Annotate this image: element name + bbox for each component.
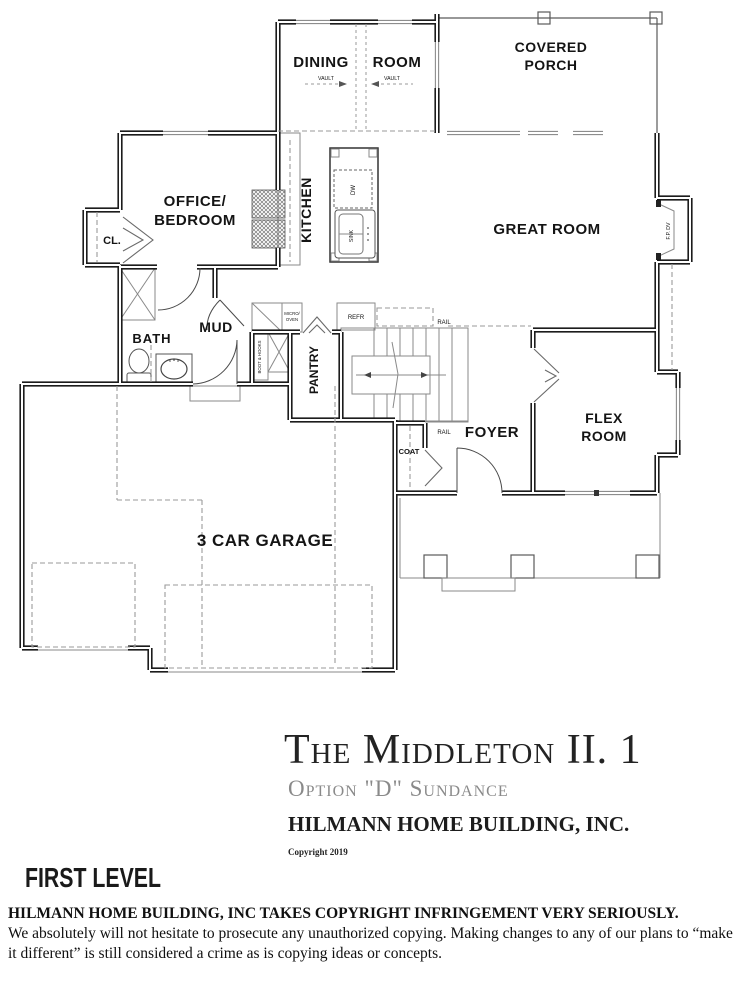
covered-porch-label: PORCH [524, 57, 577, 73]
front-door [457, 448, 502, 493]
flex-cased-opening [534, 349, 559, 402]
fireplace-label: F.P. DV [666, 222, 672, 239]
doors [158, 268, 502, 493]
porch-post [636, 555, 659, 578]
bath-fixtures [120, 268, 192, 385]
legal-body: We absolutely will not hesitate to prose… [8, 924, 745, 964]
micro-oven-label: OVEN [286, 317, 298, 322]
room-labels: DINING ROOM VAULT VAULT COVERED PORCH OF… [103, 39, 627, 550]
flex-room-label: ROOM [581, 428, 627, 444]
kitchen-island [330, 148, 378, 262]
dining-room-label: ROOM [373, 54, 422, 71]
staircase [341, 328, 468, 422]
refr-label: REFR [348, 315, 365, 321]
micro-oven-label: MICRO/ [284, 311, 300, 316]
closet-bifold [123, 217, 153, 263]
great-room-label: GREAT ROOM [493, 221, 600, 238]
flex-room-label: FLEX [585, 410, 623, 426]
floor-plan-drawing: DINING ROOM VAULT VAULT COVERED PORCH OF… [0, 0, 746, 706]
company-name: HILMANN HOME BUILDING, INC. [288, 812, 629, 837]
oven-stack [252, 220, 285, 248]
rail-label: RAIL [437, 320, 451, 326]
kitchen-label: KITCHEN [298, 177, 314, 243]
pantry-label: PANTRY [307, 346, 321, 394]
dining-room-label: DINING [293, 54, 349, 71]
fixture-labels: DW SINK REFR MICRO/ OVEN BOOT & HOOKS F.… [257, 185, 672, 436]
dashed-lines [32, 24, 672, 668]
garage-label: 3 CAR GARAGE [197, 531, 333, 550]
rail-label: RAIL [437, 430, 451, 436]
dw-label: DW [351, 185, 357, 195]
office-bedroom-label: BEDROOM [154, 212, 236, 229]
plan-title: The Middleton II. 1 [284, 727, 642, 773]
bath-label: BATH [132, 331, 171, 346]
closet-label: CL. [103, 235, 121, 247]
front-steps [442, 578, 515, 591]
boot-hooks-label: BOOT & HOOKS [257, 340, 262, 373]
oven-stack [252, 190, 285, 218]
coat-label: COAT [399, 447, 420, 456]
legal-warning: HILMANN HOME BUILDING, INC TAKES COPYRIG… [8, 904, 745, 963]
foyer-label: FOYER [465, 424, 519, 441]
copyright-note: Copyright 2019 [288, 847, 348, 857]
covered-porch-label: COVERED [515, 39, 588, 55]
garage-doors [38, 650, 362, 672]
porch-post [424, 555, 447, 578]
vault-label: VAULT [318, 76, 335, 82]
vault-label: VAULT [384, 76, 401, 82]
sink-label: SINK [349, 229, 355, 242]
mud-garage-door [193, 340, 237, 384]
legal-headline: HILMANN HOME BUILDING, INC TAKES COPYRIG… [8, 904, 745, 924]
office-bedroom-label: OFFICE/ [164, 193, 227, 210]
plan-option-subtitle: Option "D" Sundance [288, 776, 509, 802]
office-door [158, 268, 200, 310]
coat-door [425, 450, 442, 486]
front-porch-outline [400, 493, 660, 591]
walls [22, 14, 690, 670]
porch-post [511, 555, 534, 578]
toilet [127, 349, 151, 384]
level-title: FIRST LEVEL [25, 862, 161, 894]
sink-fixture [335, 210, 375, 258]
vanity-sink [156, 354, 192, 385]
pantry-door [303, 317, 331, 333]
plan-sheet: DINING ROOM VAULT VAULT COVERED PORCH OF… [0, 0, 746, 1000]
garage-step [190, 386, 240, 401]
mud-label: MUD [199, 319, 232, 335]
